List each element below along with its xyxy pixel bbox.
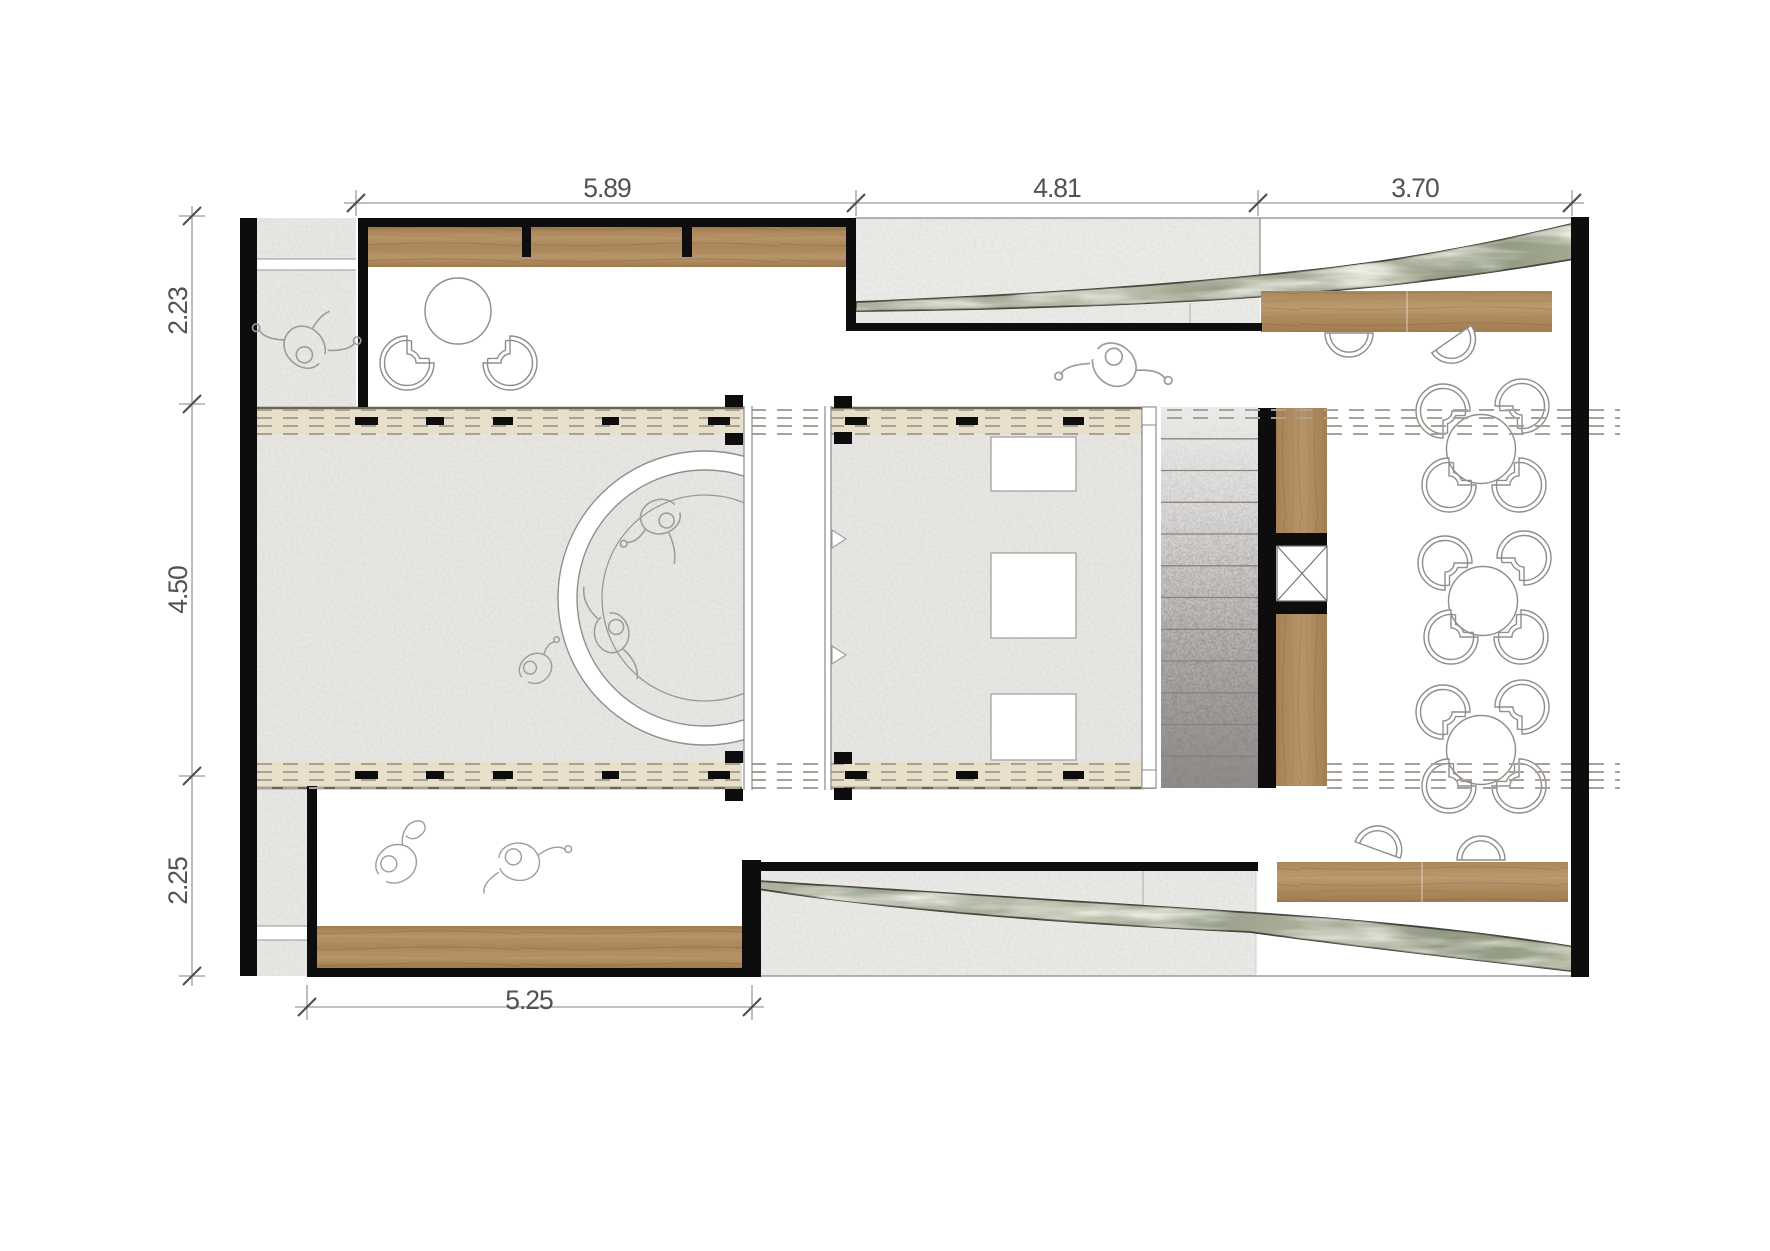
svg-text:5.89: 5.89 <box>583 173 631 203</box>
svg-text:2.25: 2.25 <box>163 857 193 905</box>
svg-text:3.70: 3.70 <box>1391 173 1439 203</box>
svg-text:2.23: 2.23 <box>163 287 193 335</box>
svg-text:5.25: 5.25 <box>505 985 553 1015</box>
svg-text:4.81: 4.81 <box>1033 173 1081 203</box>
svg-text:4.50: 4.50 <box>163 566 193 614</box>
